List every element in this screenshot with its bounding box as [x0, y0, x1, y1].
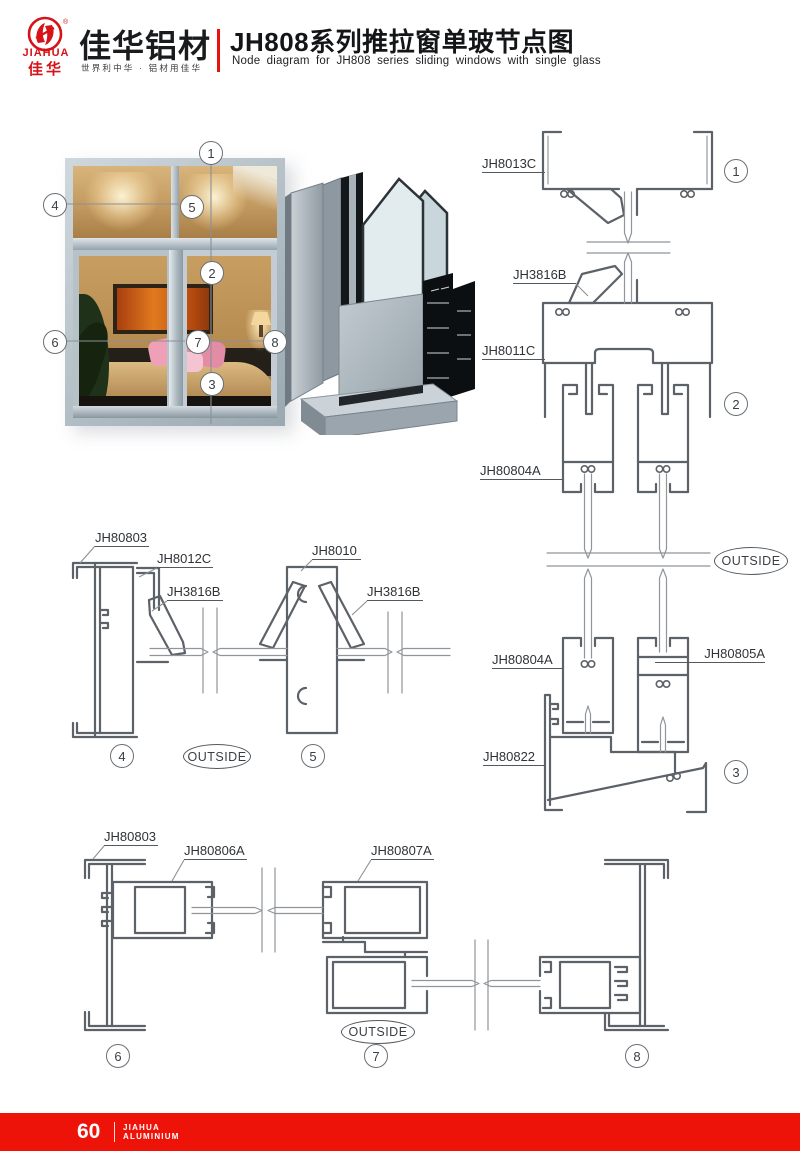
outside-label-right: OUTSIDE [714, 547, 788, 575]
logo-text-cn: 佳华 [14, 58, 78, 79]
transom-rail [73, 238, 277, 250]
section-callout-6: 6 [106, 1044, 130, 1068]
catalog-page: ® JIAHUA 佳华 佳华铝材 世界利中华 · 铝材用佳华 JH808系列推拉… [0, 0, 800, 1167]
outside-label-bottom: OUTSIDE [341, 1020, 415, 1044]
label-jh80803-mid: JH80803 [95, 530, 149, 547]
label-jh80806a: JH80806A [184, 843, 247, 860]
section-callout-3: 3 [724, 760, 748, 784]
section-callout-1: 1 [724, 159, 748, 183]
label-jh3816b-d4: JH3816B [167, 584, 223, 601]
label-jh80803-bot: JH80803 [104, 829, 158, 846]
outside-label-middle: OUTSIDE [183, 744, 251, 769]
sash-center-stile [169, 250, 183, 418]
photo-callout-4: 4 [43, 193, 67, 217]
footer-brand: JIAHUA ALUMINIUM [123, 1123, 180, 1141]
photo-callout-2: 2 [200, 261, 224, 285]
label-jh80807a: JH80807A [371, 843, 434, 860]
label-jh3816b-top: JH3816B [513, 267, 576, 284]
brand-slogan: 世界利中华 · 铝材用佳华 [81, 62, 202, 74]
page-subtitle: Node diagram for JH808 series sliding wi… [232, 55, 601, 67]
transom-mullion [171, 166, 179, 238]
label-jh8010: JH8010 [312, 543, 361, 560]
photo-callout-7: 7 [186, 330, 210, 354]
section-callout-7: 7 [364, 1044, 388, 1068]
photo-callout-6: 6 [43, 330, 67, 354]
section-callout-4: 4 [110, 744, 134, 768]
page-number: 60 [77, 1120, 100, 1144]
photo-callout-3: 3 [200, 372, 224, 396]
label-jh80822: JH80822 [483, 749, 545, 766]
svg-text:®: ® [63, 18, 69, 26]
label-jh80804a-lower: JH80804A [492, 652, 563, 669]
window-photo [65, 158, 285, 426]
label-jh3816b-d5: JH3816B [367, 584, 423, 601]
page-title: JH808系列推拉窗单玻节点图 [230, 22, 574, 59]
label-jh8012c: JH8012C [157, 551, 213, 568]
photo-callout-8: 8 [263, 330, 287, 354]
section-callout-8: 8 [625, 1044, 649, 1068]
footer-bar: 60 JIAHUA ALUMINIUM [0, 1113, 800, 1151]
label-jh8011c: JH8011C [482, 343, 545, 360]
footer-divider [114, 1122, 115, 1142]
label-jh80805a: JH80805A [655, 646, 765, 663]
header-divider [217, 29, 220, 72]
brand-name: 佳华铝材 [79, 21, 211, 67]
footer-brand-line2: ALUMINIUM [123, 1132, 180, 1141]
label-jh8013c: JH8013C [482, 156, 545, 173]
photo-callout-5: 5 [180, 195, 204, 219]
footer-brand-line1: JIAHUA [123, 1123, 180, 1132]
sliding-sash-left [73, 250, 173, 418]
bottom-track [73, 406, 277, 418]
section-callout-2: 2 [724, 392, 748, 416]
transom-pane-left [73, 166, 171, 238]
label-jh80804a-upper: JH80804A [480, 463, 563, 480]
horizontal-section-drawing-4-5 [60, 520, 460, 765]
photo-callout-1: 1 [199, 141, 223, 165]
profile-3d-render [283, 163, 483, 435]
section-callout-5: 5 [301, 744, 325, 768]
